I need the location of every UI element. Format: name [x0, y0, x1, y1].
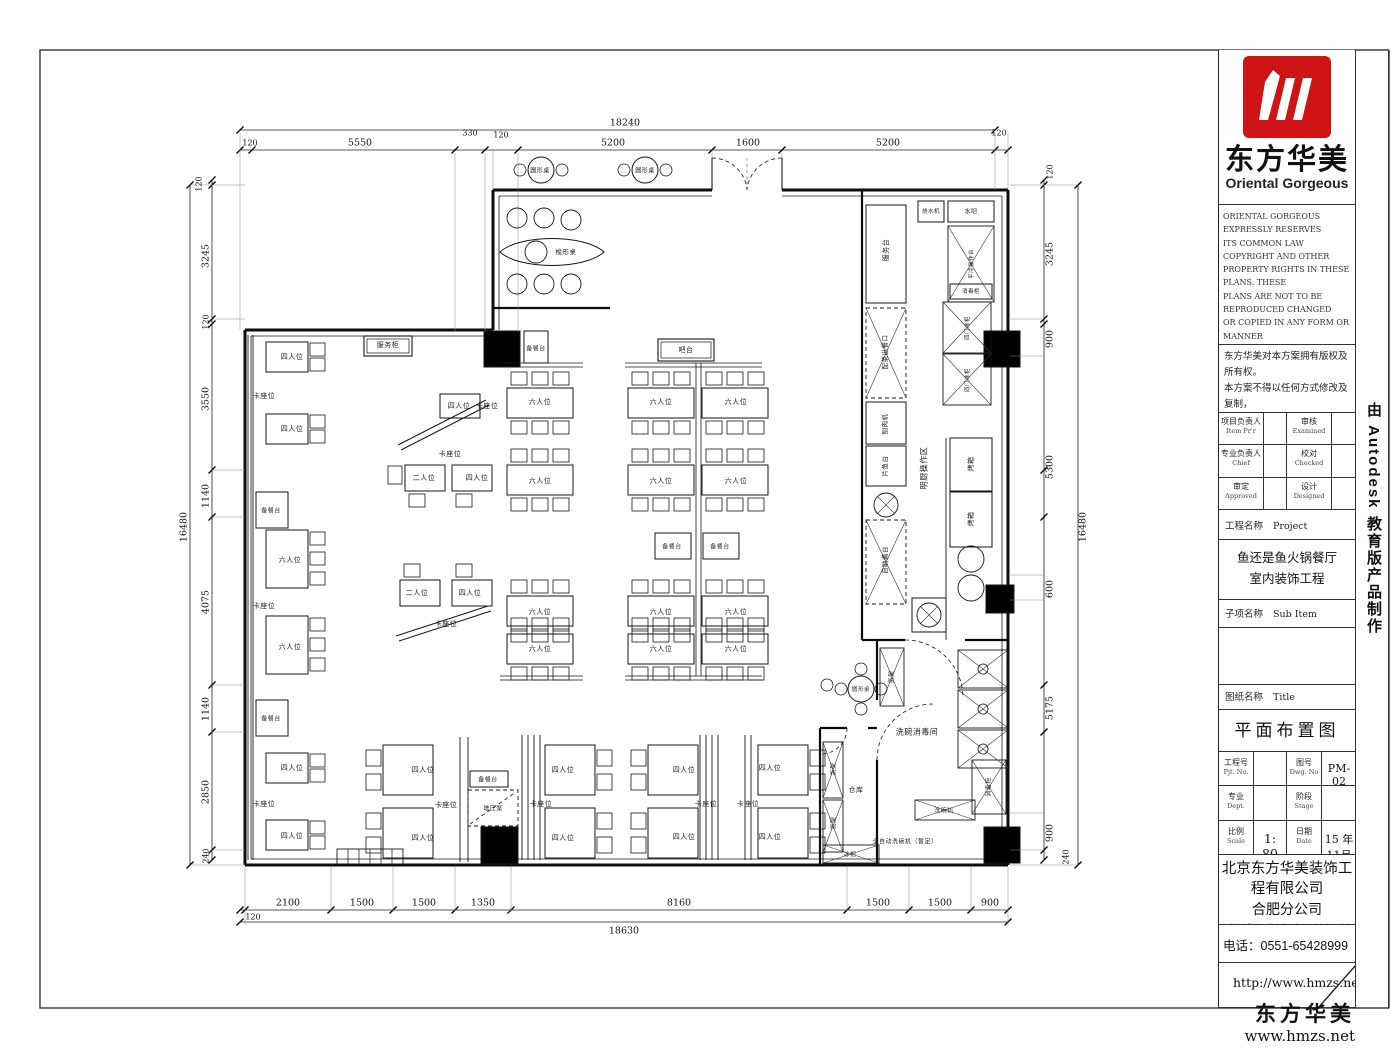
approval-label: 校对Checked: [1287, 445, 1332, 477]
plan-label: 二人位: [406, 588, 429, 598]
dimension-label: 1500: [412, 898, 436, 909]
footer-brand: 东方华美 www.hmzs.net: [1090, 1003, 1355, 1045]
dimension-label: 120: [1046, 164, 1055, 179]
field-label: 专业Dept.: [1219, 786, 1254, 820]
plan-label: 烧水机: [922, 207, 940, 215]
approval-label: 审定Approved: [1219, 478, 1264, 510]
field-label: 图号Dwg. No: [1287, 752, 1322, 786]
field-label: 比例Scale: [1219, 821, 1254, 855]
dimension-label: 4075: [201, 590, 212, 614]
approval-value: [1332, 478, 1355, 510]
dimension-label: 1600: [736, 138, 760, 149]
approval-value: [1264, 413, 1287, 445]
dimension-label: 120: [195, 176, 204, 191]
plan-label: 四人位: [412, 833, 435, 843]
field-label: 阶段Stage: [1287, 786, 1322, 820]
dimension-label: 120: [493, 131, 508, 140]
plan-label: 消毒柜: [984, 777, 993, 797]
plan-label: 仓库: [849, 785, 864, 795]
plan-label: 卡座位: [476, 401, 499, 411]
plan-label: 卡座位: [253, 391, 276, 401]
plan-label: 四人位: [552, 833, 575, 843]
dimension-label: 120: [245, 913, 260, 922]
dimension-label: 16480: [179, 512, 190, 542]
dimension-label: 240: [202, 848, 211, 863]
dimension-label: 600: [1045, 580, 1056, 598]
plan-label: 烤箱: [966, 512, 976, 527]
dimension-label: 3550: [201, 387, 212, 411]
logo-mark-icon: [1243, 56, 1331, 138]
plan-label: 备餐台: [261, 714, 281, 723]
plan-label: 六人位: [650, 476, 673, 486]
plan-label: 四人位: [281, 831, 304, 841]
copyright-chinese: 东方华美对本方案拥有版权及所有权。本方案不得以任何方式修改及复制，未经东方华美书…: [1219, 345, 1355, 413]
field-value: [1322, 786, 1355, 820]
dimension-label: 5200: [876, 138, 900, 149]
dimension-label: 5300: [1045, 455, 1056, 479]
plan-label: 六人位: [725, 644, 748, 654]
approval-value: [1332, 445, 1355, 477]
plan-label: 冰柜: [843, 850, 856, 859]
dimension-label: 16480: [1078, 512, 1089, 542]
plan-label: 四门冰柜: [963, 368, 971, 392]
dimension-label: 5550: [348, 138, 372, 149]
plan-label: 六人位: [529, 476, 552, 486]
plan-label: 服务柜: [377, 340, 400, 350]
plan-label: 卡座位: [530, 799, 553, 809]
plan-label: 四人位: [281, 424, 304, 434]
dimension-label: 1500: [350, 898, 374, 909]
autodesk-strip-text: 由 Autodesk 教育版产品制作: [1363, 402, 1384, 635]
dimension-label: 120: [242, 139, 257, 148]
corner-cut-line: [1296, 958, 1356, 1008]
plan-label: 六人位: [725, 607, 748, 617]
plan-label: 圆形桌: [530, 166, 550, 175]
dimension-label: 18630: [609, 926, 639, 937]
footer-brand-name: 东方华美: [1090, 1003, 1355, 1027]
plan-label: 六人位: [529, 607, 552, 617]
plan-label: 四门冰柜: [963, 316, 971, 340]
plan-label: 四人位: [552, 765, 575, 775]
plan-label: 卡座位: [435, 619, 458, 629]
field-label: 日期Date: [1287, 821, 1322, 855]
dimension-label: 1140: [201, 484, 212, 508]
plan-label: 四人位: [281, 763, 304, 773]
drawing-title: 平面布置图: [1219, 710, 1355, 752]
plan-label: 六人位: [650, 644, 673, 654]
plan-label: 卡座位: [439, 449, 462, 459]
approval-label: 设计Designed: [1287, 478, 1332, 510]
field-value: [1254, 752, 1287, 786]
plan-label: 四人位: [466, 473, 489, 483]
project-name: 鱼还是鱼火锅餐厅 室内装饰工程: [1219, 540, 1355, 600]
plan-label: 明厨操作区: [919, 447, 930, 490]
plan-label: 洗碗消毒间: [896, 727, 939, 738]
approval-label: 审核Examined: [1287, 413, 1332, 445]
plan-label: 四人位: [759, 763, 782, 773]
dimension-label: 120: [202, 314, 211, 329]
plan-label: 圆形桌: [635, 166, 655, 175]
field-label: 工程号Pjt. No.: [1219, 752, 1254, 786]
approval-value: [1264, 445, 1287, 477]
plan-label: 吧台: [679, 345, 694, 355]
dimension-label: 2850: [201, 780, 212, 804]
plan-label: 梭形桌: [556, 246, 577, 256]
logo-text-en: Oriental Gorgeous: [1219, 175, 1355, 191]
plan-label: 备餐台: [662, 542, 682, 551]
plan-label: 货架: [829, 816, 838, 829]
logo-text-cn: 东方华美: [1219, 145, 1355, 175]
plan-label: 四人位: [759, 832, 782, 842]
plan-label: 六人位: [279, 555, 302, 565]
plan-label: 六人位: [529, 397, 552, 407]
company-info: 北京东方华美装饰工程有限公司 合肥分公司 安徽省合肥市马鞍山路与南二环交汇处绿地…: [1219, 855, 1355, 925]
dimension-label: 330: [462, 129, 477, 138]
field-value-scale: 1: 80: [1254, 821, 1287, 855]
plan-label: 全自动洗碗机（暂定）: [872, 837, 937, 846]
dimension-label: 3245: [201, 244, 212, 268]
dimension-label: 8160: [667, 898, 691, 909]
dimension-label: 18240: [610, 118, 640, 129]
plan-label: 六人位: [650, 397, 673, 407]
plan-label: 四人位: [673, 765, 696, 775]
plan-label: 平冷操作台: [967, 249, 975, 279]
dimension-label: 120: [991, 129, 1006, 138]
field-value-date: 15 年11月: [1322, 821, 1355, 855]
project-label: 工程名称Project: [1219, 510, 1355, 540]
dimension-label: 900: [1045, 824, 1056, 842]
plan-label: 四人位: [412, 765, 435, 775]
fields-grid: 工程号Pjt. No. 图号Dwg. No PM-02 专业Dept. 阶段St…: [1219, 752, 1355, 855]
dimension-label: 1500: [866, 898, 890, 909]
plan-label: 卡座位: [253, 601, 276, 611]
approval-value: [1264, 478, 1287, 510]
plan-label: 备餐台: [526, 344, 546, 353]
approval-label: 项目负责人Item Pr'r: [1219, 413, 1264, 445]
plan-label: 六人位: [279, 642, 302, 652]
dimension-label: 2100: [276, 898, 300, 909]
plan-label: 洗碗机: [934, 806, 954, 815]
dimension-label: 900: [1045, 330, 1056, 348]
plan-label: 刨肉机: [879, 414, 889, 435]
approval-value: [1332, 413, 1355, 445]
plan-label: 备餐台: [478, 775, 498, 784]
dimension-label: 3245: [1045, 242, 1056, 266]
dimension-label: 1500: [928, 898, 952, 909]
footer-brand-url: www.hmzs.net: [1090, 1027, 1355, 1045]
plan-label: 货架: [829, 762, 838, 775]
plan-label: 四人位: [448, 401, 471, 411]
plan-label: 水吧: [964, 207, 977, 216]
plan-label: 四人位: [673, 832, 696, 842]
plan-label: 卡座位: [695, 799, 718, 809]
sheet-title-label: 图纸名称Title: [1219, 685, 1355, 710]
plan-label: 烤箱: [966, 457, 976, 472]
plan-label: 货架: [887, 670, 896, 683]
plan-label: 六人位: [650, 607, 673, 617]
plan-label: 备餐台: [261, 506, 281, 515]
dimension-label: 900: [981, 898, 999, 909]
subitem-value: [1219, 628, 1355, 685]
plan-label: 片鱼台: [879, 456, 889, 477]
approval-label: 专业负责人Chief: [1219, 445, 1264, 477]
plan-label: 卡座位: [737, 799, 760, 809]
approval-grid: 项目负责人Item Pr'r 审核Examined 专业负责人Chief 校对C…: [1219, 413, 1355, 510]
subitem-label: 子项名称Sub Item: [1219, 600, 1355, 628]
plan-label: 二人位: [413, 473, 436, 483]
autodesk-strip: 由 Autodesk 教育版产品制作: [1355, 50, 1389, 1008]
plan-label: 卡座位: [435, 800, 458, 810]
plan-label: 自助酱台: [879, 546, 889, 574]
copyright-english: ORIENTAL GORGEOUS EXPRESSLY RESERVESITS …: [1219, 205, 1355, 345]
drawing-sheet: 圆形桌圆形桌梭形桌服务柜吧台四人位卡座位四人位备餐台六人位卡座位六人位备餐台四人…: [0, 0, 1391, 1055]
plan-label: 服务台: [881, 239, 891, 262]
plan-label: 配菜出餐口: [879, 335, 889, 370]
title-block: 东方华美 Oriental Gorgeous ORIENTAL GORGEOUS…: [1218, 50, 1355, 1008]
floor-plan-canvas: [0, 0, 1391, 1055]
dimension-label: 5200: [601, 138, 625, 149]
field-value-drawing-number: PM-02: [1322, 752, 1355, 786]
company-logo: 东方华美 Oriental Gorgeous: [1219, 50, 1355, 205]
field-value: [1254, 786, 1287, 820]
plan-label: 四人位: [281, 352, 304, 362]
dimension-label: 1350: [471, 898, 495, 909]
plan-label: 消毒柜: [962, 287, 980, 295]
plan-label: 六人位: [725, 397, 748, 407]
plan-label: 备餐台: [710, 542, 730, 551]
plan-label: 增压泵: [483, 804, 503, 813]
dimension-label: 1140: [201, 697, 212, 721]
dimension-label: 5175: [1045, 696, 1056, 720]
dimension-label: 240: [1062, 849, 1071, 864]
plan-label: 六人位: [725, 476, 748, 486]
plan-label: 六人位: [529, 644, 552, 654]
plan-label: 四人位: [459, 588, 482, 598]
plan-label: 圆形桌: [852, 685, 870, 693]
plan-label: 卡座位: [253, 799, 276, 809]
